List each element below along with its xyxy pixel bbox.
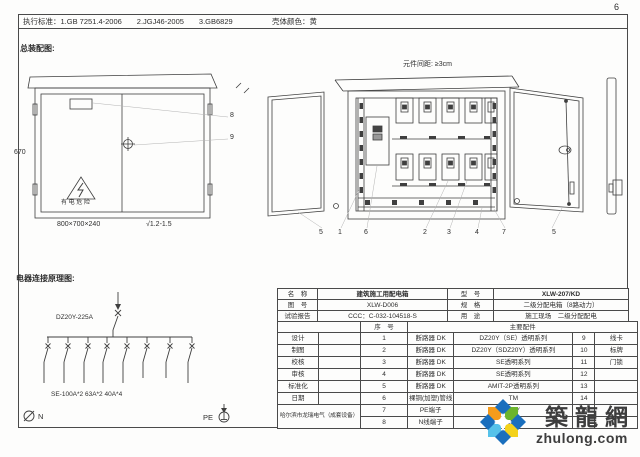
- watermark-cn-text: 築龍網: [545, 404, 635, 430]
- part-name-cell: N线端子: [408, 417, 454, 429]
- serial-cell: 1: [361, 333, 408, 345]
- part-number: 2: [423, 229, 427, 237]
- branch-breakers: [44, 337, 195, 383]
- field-value: 建筑施工用配电箱: [318, 289, 448, 300]
- part-name-cell: [595, 369, 638, 381]
- table-row: 制图 2 断路器 DK DZ20Y（SDZ20Y）透明系列 10 标牌: [278, 345, 638, 357]
- dim-height: 670: [14, 149, 26, 157]
- part-number: 5: [552, 229, 556, 237]
- table-row: 审核 4 断路器 DK SE透明系列 12: [278, 369, 638, 381]
- field-label: 试验报告: [278, 311, 318, 322]
- field-value: CCC：C-032-104518-S: [318, 311, 448, 322]
- door-handle-icon: [121, 137, 135, 151]
- part-name-cell: PE端子: [408, 405, 454, 417]
- warning-label: 有 电 危 险: [61, 200, 90, 207]
- table-row: 设计 1 断路器 DK DZ20Y（SE）透明系列 9 线卡: [278, 333, 638, 345]
- neutral-label: N: [38, 412, 43, 421]
- parts-header: 主要配件: [408, 322, 638, 333]
- pe-label: PE: [203, 413, 213, 422]
- table-row: 校核 3 断路器 DK SE透明系列 11 门锁: [278, 357, 638, 369]
- role-cell: 校核: [278, 357, 319, 369]
- empty-cell: [278, 322, 361, 333]
- side-view: [607, 78, 622, 214]
- callout-9: 9: [230, 134, 234, 142]
- role-cell: 制图: [278, 345, 319, 357]
- field-label: 规 格: [448, 300, 494, 311]
- table-header-row: 序 号 主要配件: [278, 322, 638, 333]
- table-row: 名 称 建筑施工用配电箱 型 号 XLW-207/KD: [278, 289, 629, 300]
- title-block-info-table: 名 称 建筑施工用配电箱 型 号 XLW-207/KD 图 号 XLW-D006…: [277, 288, 629, 322]
- watermark: 築龍網 zhulong.com: [479, 396, 639, 456]
- sign-cell: [319, 357, 361, 369]
- left-door-open: [268, 92, 339, 216]
- field-label: 图 号: [278, 300, 318, 311]
- field-label: 名 称: [278, 289, 318, 300]
- serial-cell: 3: [361, 357, 408, 369]
- field-value: 二级分配电箱（8路动力）: [494, 300, 629, 311]
- serial-cell: 8: [361, 417, 408, 429]
- part-name-cell: 断路器 DK: [408, 369, 454, 381]
- wiring-schematic: [24, 292, 229, 422]
- serial-cell: 7: [361, 405, 408, 417]
- serial-cell: 2: [361, 345, 408, 357]
- part-name-cell: 裸铜(加塑)管线: [408, 393, 454, 405]
- part-number: 5: [319, 229, 323, 237]
- sign-cell: [319, 393, 361, 405]
- sign-cell: [319, 333, 361, 345]
- part-name-cell: 断路器 DK: [408, 333, 454, 345]
- ground-icon: [219, 404, 229, 422]
- part-name-cell: 断路器 DK: [408, 381, 454, 393]
- serial-cell: 6: [361, 393, 408, 405]
- part-name-cell: 门锁: [595, 357, 638, 369]
- part-name-cell: 标牌: [595, 345, 638, 357]
- part-number: 6: [364, 229, 368, 237]
- dim-size: 800×700×240: [57, 221, 100, 229]
- nameplate: [70, 99, 92, 109]
- electric-hazard-icon: [67, 177, 95, 199]
- dim-thickness: √1.2-1.5: [146, 221, 172, 229]
- part-spec-cell: DZ20Y（SE）透明系列: [454, 333, 573, 345]
- table-row: 标准化 5 断路器 DK AMIT-2P透明系列 13: [278, 381, 638, 393]
- callout-8: 8: [230, 112, 234, 120]
- table-row: 图 号 XLW-D006 规 格 二级分配电箱（8路动力）: [278, 300, 629, 311]
- part-name-cell: 断路器 DK: [408, 345, 454, 357]
- part-spec-cell: AMIT-2P透明系列: [454, 381, 573, 393]
- serial-cell: 11: [573, 357, 595, 369]
- serial-cell: 5: [361, 381, 408, 393]
- assembly-title: 总装配图:: [20, 44, 55, 53]
- right-door-open: [510, 88, 583, 212]
- part-spec-cell: SE透明系列: [454, 369, 573, 381]
- part-number: 3: [447, 229, 451, 237]
- sign-cell: [319, 345, 361, 357]
- part-number: 1: [338, 229, 342, 237]
- internal-view: [268, 76, 583, 219]
- table-row: 试验报告 CCC：C-032-104518-S 用 途 施工现场 二级分配配电: [278, 311, 629, 322]
- breaker-row-2: [396, 154, 497, 180]
- role-cell: 设计: [278, 333, 319, 345]
- sign-cell: [319, 381, 361, 393]
- part-name-cell: [595, 381, 638, 393]
- field-value: XLW-D006: [318, 300, 448, 311]
- part-spec-cell: DZ20Y（SDZ20Y）透明系列: [454, 345, 573, 357]
- part-number: 7: [502, 229, 506, 237]
- neutral-icon: [24, 411, 34, 421]
- schematic-title: 电器连接原理图:: [16, 274, 75, 283]
- serial-cell: 4: [361, 369, 408, 381]
- watermark-url-text: zhulong.com: [536, 431, 628, 446]
- field-value: 施工现场 二级分配配电: [494, 311, 629, 322]
- main-breaker-label: DZ20Y-225A: [56, 314, 93, 321]
- zhulong-logo-icon: [479, 398, 527, 450]
- part-spec-cell: SE透明系列: [454, 357, 573, 369]
- role-cell: 审核: [278, 369, 319, 381]
- front-view: [28, 74, 249, 218]
- serial-cell: 10: [573, 345, 595, 357]
- main-breaker: [366, 117, 389, 165]
- leader-lines: [93, 103, 562, 228]
- serial-cell: 12: [573, 369, 595, 381]
- serial-cell: 13: [573, 381, 595, 393]
- role-cell: 日期: [278, 393, 319, 405]
- role-cell: 标准化: [278, 381, 319, 393]
- breaker-row-1: [396, 98, 497, 123]
- part-name-cell: 线卡: [595, 333, 638, 345]
- spacing-note: 元件间距: ≥3cm: [403, 61, 452, 69]
- field-value: XLW-207/KD: [494, 289, 629, 300]
- part-number: 4: [475, 229, 479, 237]
- serial-cell: 9: [573, 333, 595, 345]
- field-label: 用 途: [448, 311, 494, 322]
- sign-cell: [319, 369, 361, 381]
- terminal-strip: [358, 198, 495, 207]
- branch-spec-label: SE-100A*2 63A*2 40A*4: [51, 391, 122, 398]
- part-name-cell: 断路器 DK: [408, 357, 454, 369]
- serial-header: 序 号: [361, 322, 408, 333]
- field-label: 型 号: [448, 289, 494, 300]
- company-cell: 哈尔滨市龙瑞电气（成套设备）: [278, 405, 361, 429]
